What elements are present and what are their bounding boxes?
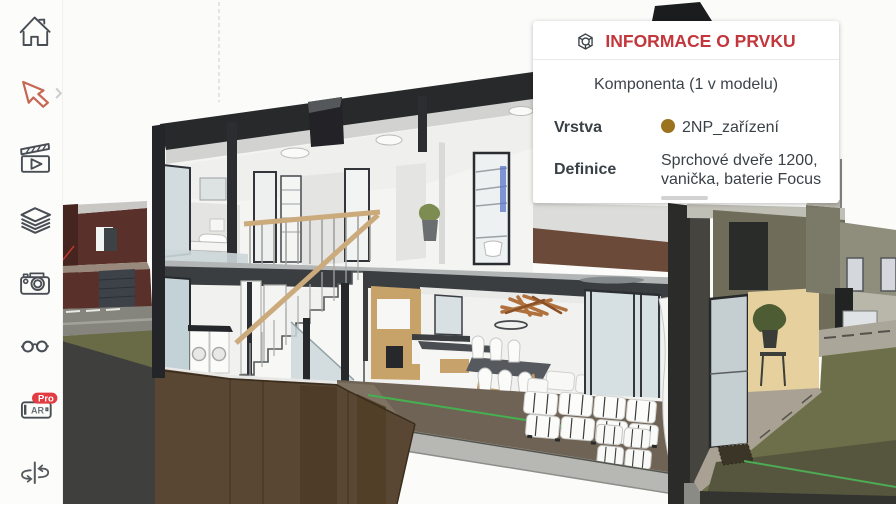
svg-text:AR: AR: [31, 406, 44, 416]
svg-text:Pro: Pro: [38, 394, 54, 405]
